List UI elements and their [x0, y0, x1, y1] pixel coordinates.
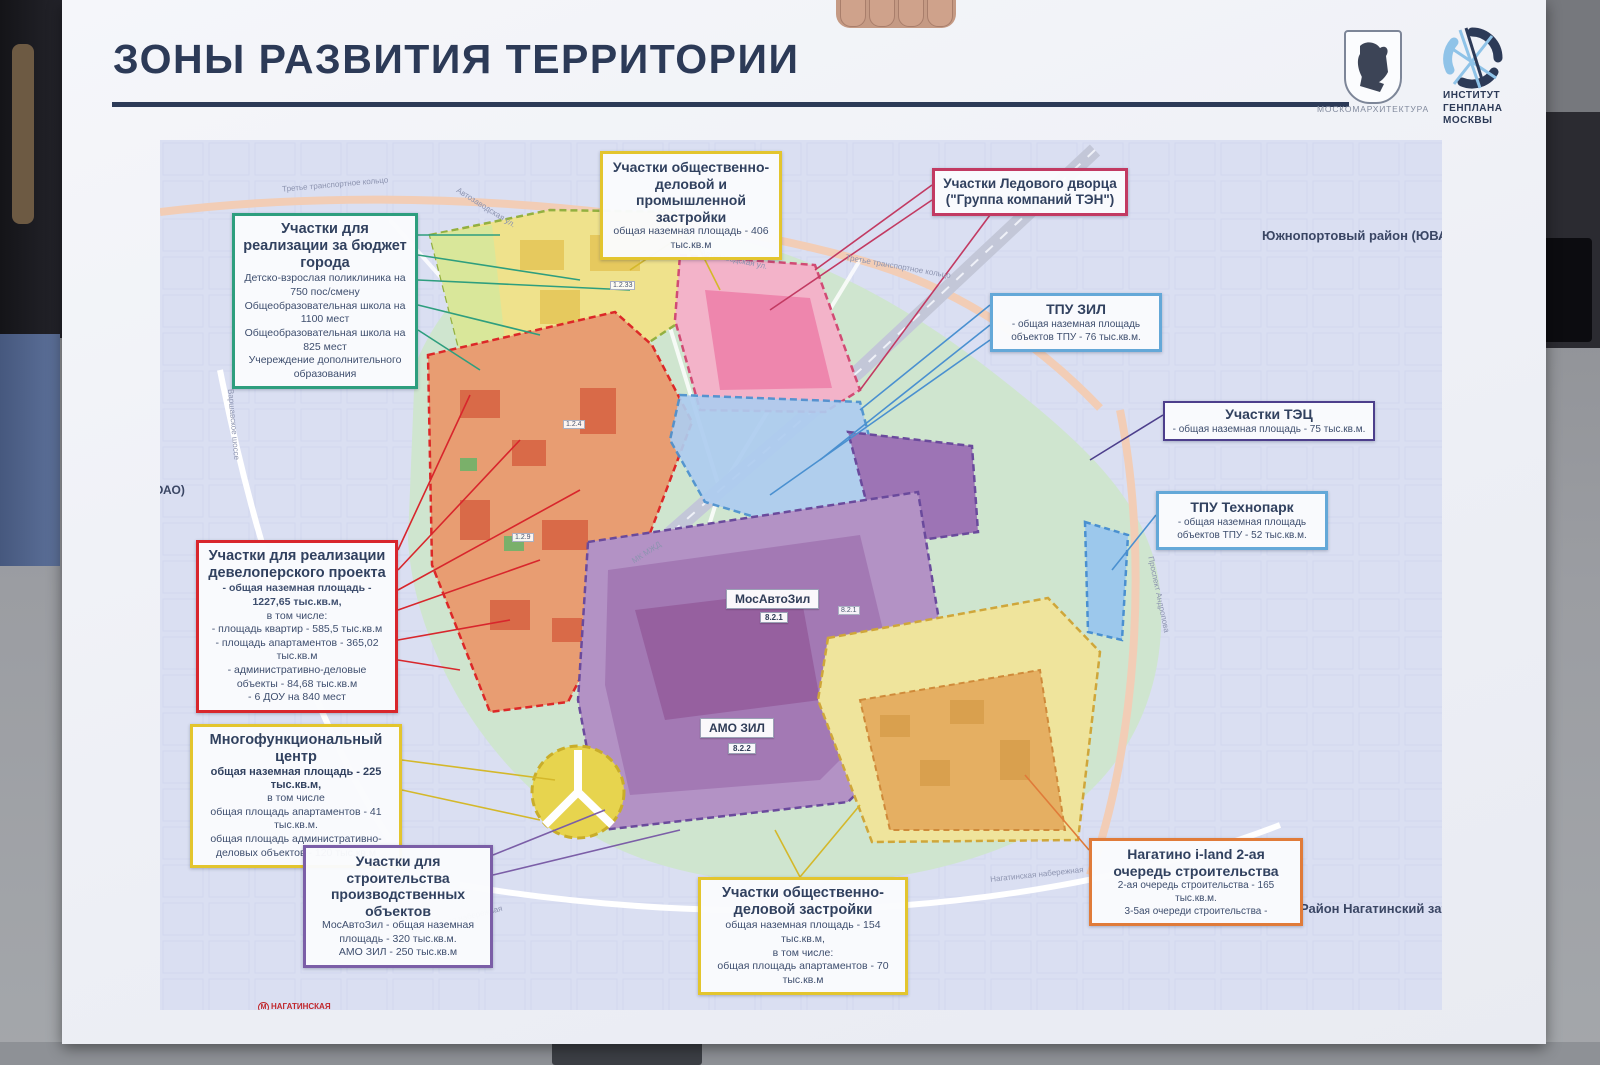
- map-chip-amozil-code: 8.2.2: [728, 743, 756, 754]
- metro-station-label: МНАГАТИНСКАЯ: [258, 1002, 331, 1010]
- callout-business: Участки общественно-деловой застройки об…: [698, 877, 908, 995]
- callout-tec: Участки ТЭЦ - общая наземная площадь - 7…: [1163, 401, 1375, 441]
- region-label-yuzhnoportovy: Южнопортовый район (ЮВАО: [1262, 228, 1442, 243]
- moskomarkhitektura-coat-of-arms-icon: [1344, 30, 1402, 104]
- parcel-chip: 1.2.33: [610, 281, 635, 290]
- finger: [869, 0, 895, 27]
- callout-developer: Участки для реализации девелоперского пр…: [196, 540, 398, 713]
- callout-technopark: ТПУ Технопарк - общая наземная площадь о…: [1156, 491, 1328, 550]
- region-label-nagatinsky-zaton: Район Нагатинский затон: [1300, 901, 1442, 916]
- finger: [927, 0, 953, 27]
- callout-budget: Участки для реализации за бюджет города …: [232, 213, 418, 389]
- parcel-chip: 1.2.4: [563, 420, 585, 429]
- parcel-chip: 1.2.9: [512, 533, 534, 542]
- callout-ice-palace: Участки Ледового дворца ("Группа компани…: [932, 168, 1128, 216]
- st-george-icon: [1346, 32, 1400, 102]
- metro-icon: М: [258, 1002, 269, 1010]
- callout-tpu-zil: ТПУ ЗИЛ - общая наземная площадь объекто…: [990, 293, 1162, 352]
- zone-nagatino-orange: [860, 670, 1065, 830]
- moskomarkhitektura-label: МОСКОМАРХИТЕКТУРА: [1298, 104, 1448, 114]
- finger: [898, 0, 924, 27]
- poster: ЗОНЫ РАЗВИТИЯ ТЕРРИТОРИИ МОСКОМАРХИТЕКТУ…: [62, 0, 1546, 1044]
- callout-industrial: Участки общественно-деловой и промышленн…: [600, 151, 782, 260]
- genplan-institute-label: ИНСТИТУТ ГЕНПЛАНА МОСКВЫ: [1443, 90, 1502, 128]
- bag-strap: [12, 44, 34, 224]
- hand-holding-poster: [836, 0, 956, 28]
- genplan-institute-logo-icon: [1440, 26, 1504, 90]
- title-rule: [112, 102, 1349, 107]
- bystander-jeans: [0, 334, 60, 566]
- poster-title: ЗОНЫ РАЗВИТИЯ ТЕРРИТОРИИ: [113, 36, 799, 83]
- ground: [0, 1042, 1600, 1065]
- region-label-oao: ОАО): [160, 483, 185, 497]
- map-chip-amozil: АМО ЗИЛ: [700, 718, 774, 738]
- callout-production: Участки для строительства производственн…: [303, 845, 493, 968]
- callout-nagatino: Нагатино i-land 2-ая очередь строительст…: [1089, 838, 1303, 926]
- parcel-chip: 8.2.1: [838, 606, 860, 615]
- finger: [840, 0, 866, 27]
- zone-technopark-blue: [1085, 522, 1128, 640]
- map-chip-mosavtozil-code: 8.2.1: [760, 612, 788, 623]
- map-chip-mosavtozil: МосАвтоЗил: [726, 589, 819, 609]
